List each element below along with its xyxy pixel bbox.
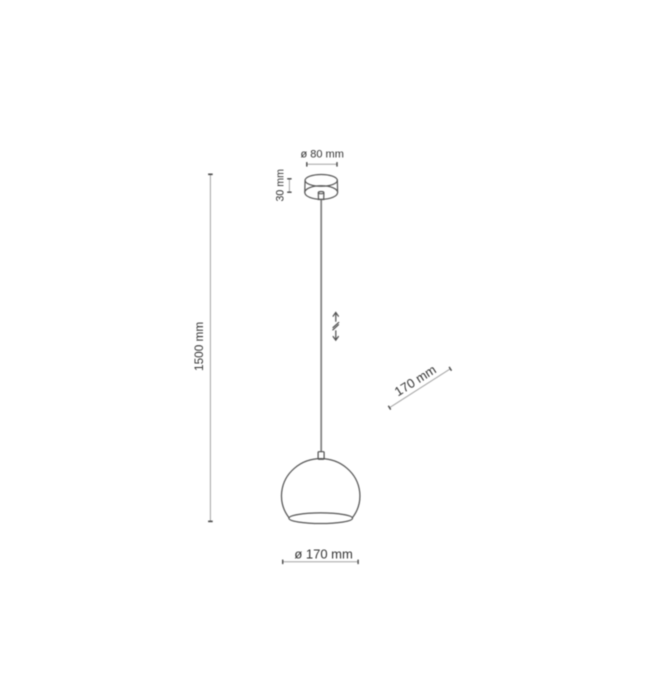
svg-text:1500 mm: 1500 mm xyxy=(192,322,206,371)
svg-text:ø 170 mm: ø 170 mm xyxy=(294,547,353,562)
svg-text:30 mm: 30 mm xyxy=(274,169,286,202)
svg-text:ø 80 mm: ø 80 mm xyxy=(300,148,343,160)
